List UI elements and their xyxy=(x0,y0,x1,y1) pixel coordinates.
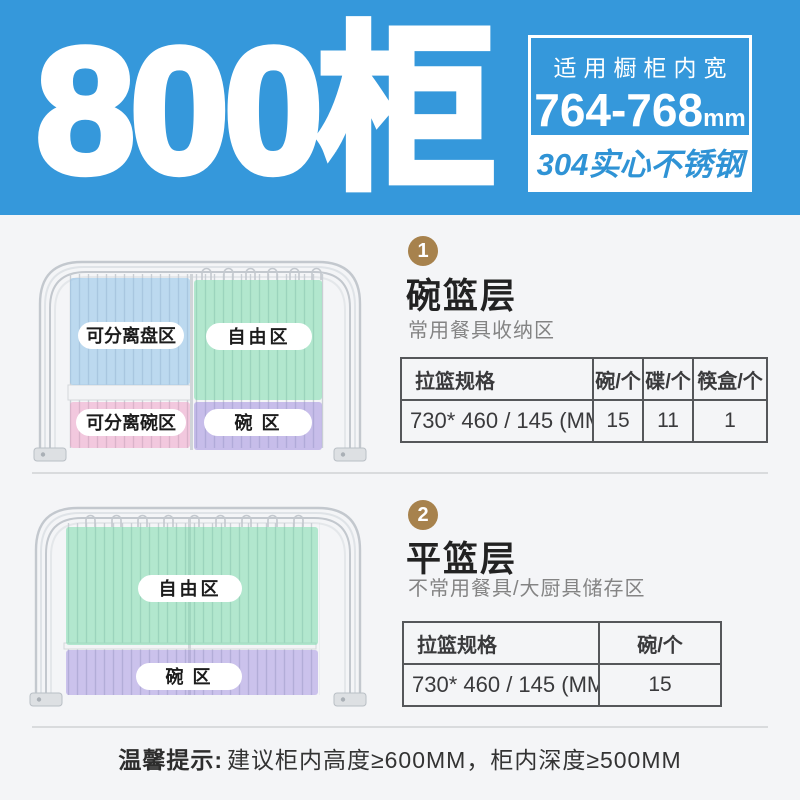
zone-label-bowl: 碗 区 xyxy=(234,412,281,433)
spec-table-2-size: 730* 460 / 145 (MM) xyxy=(403,664,599,706)
zone-label-bowl-detachable: 可分离碗区 xyxy=(86,412,176,433)
spec-table-1-header-spec: 拉篮规格 xyxy=(401,358,593,400)
material-badge: 304实心不锈钢 xyxy=(528,138,752,192)
section-1-title: 碗篮层 xyxy=(406,268,517,319)
spec-table-1-chopstick-count: 1 xyxy=(693,400,767,442)
footer-divider xyxy=(32,726,768,728)
basket-center-divider xyxy=(190,274,193,450)
spec-unit: mm xyxy=(703,105,746,132)
spec-table-1-bowls-count: 15 xyxy=(593,400,643,442)
spec-label: 适用橱柜内宽 xyxy=(531,49,749,83)
cabinet-width-spec-box: 适用橱柜内宽 764-768mm xyxy=(528,35,752,138)
zone-label-bowl: 碗 区 xyxy=(165,666,212,687)
tip-text: 温馨提示:建议柜内高度≥600MM，柜内深度≥500MM xyxy=(0,741,800,775)
spec-table-2: 拉篮规格 碗/个 730* 460 / 145 (MM) 15 xyxy=(402,621,722,707)
zone-label-free: 自由区 xyxy=(159,578,222,599)
spec-table-1-plates-count: 11 xyxy=(643,400,693,442)
spec-value: 764-768mm xyxy=(531,87,749,142)
section-2-subtitle: 不常用餐具/大厨具储存区 xyxy=(408,572,646,601)
zone-label-pill: 可分离碗区 xyxy=(76,409,186,436)
zone-label-pill: 自由区 xyxy=(206,323,312,350)
product-infographic: { "colors": { "header-bg": "#3598db", "h… xyxy=(0,0,800,800)
section-divider xyxy=(32,472,768,474)
spec-table-1-header-plates: 碟/个 xyxy=(643,358,693,400)
spec-table-2-header-bowls: 碗/个 xyxy=(599,622,721,664)
zone-label-pill: 碗 区 xyxy=(204,409,312,436)
zone-label-free: 自由区 xyxy=(228,326,291,347)
spec-range: 764-768 xyxy=(534,84,703,136)
cabinet-size-title: 800柜 xyxy=(36,0,491,215)
spec-table-1-header-chopstick-box: 筷盒/个 xyxy=(693,358,767,400)
spec-table-1-header-row: 拉篮规格 碗/个 碟/个 筷盒/个 xyxy=(401,358,767,400)
spec-table-1-data-row: 730* 460 / 145 (MM) 15 11 1 xyxy=(401,400,767,442)
zone-label-plate: 可分离盘区 xyxy=(86,325,176,346)
bowl-basket-illustration: 可分离盘区 自由区 可分离碗区 碗 区 xyxy=(30,252,370,467)
spec-table-2-data-row: 730* 460 / 145 (MM) 15 xyxy=(403,664,721,706)
spec-table-2-bowls-count: 15 xyxy=(599,664,721,706)
spec-table-1: 拉篮规格 碗/个 碟/个 筷盒/个 730* 460 / 145 (MM) 15… xyxy=(400,357,768,443)
spec-table-1-size: 730* 460 / 145 (MM) xyxy=(401,400,593,442)
tip-body: 建议柜内高度≥600MM，柜内深度≥500MM xyxy=(227,747,682,773)
zone-label-pill: 自由区 xyxy=(138,575,242,602)
tip-label: 温馨提示: xyxy=(118,747,223,773)
spec-table-2-header-row: 拉篮规格 碗/个 xyxy=(403,622,721,664)
section-1-subtitle: 常用餐具收纳区 xyxy=(408,314,555,343)
spec-table-1-header-bowls: 碗/个 xyxy=(593,358,643,400)
spec-table-2-header-spec: 拉篮规格 xyxy=(403,622,599,664)
flat-basket-illustration: 自由区 碗 区 xyxy=(28,493,368,713)
basket-mid-rail xyxy=(68,385,191,400)
zone-label-pill: 可分离盘区 xyxy=(78,322,184,349)
step-badge-1: 1 xyxy=(408,236,438,266)
zone-label-pill: 碗 区 xyxy=(136,663,242,690)
step-badge-2: 2 xyxy=(408,500,438,530)
header-banner: 800柜 适用橱柜内宽 764-768mm 304实心不锈钢 xyxy=(0,0,800,215)
